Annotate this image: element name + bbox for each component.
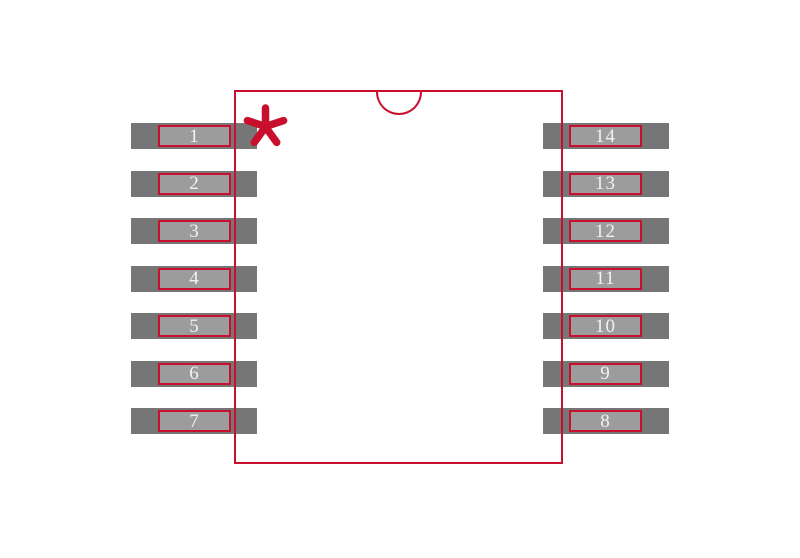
pin-8-number: 8 <box>600 412 611 431</box>
pin-12-outline: 12 <box>569 220 642 242</box>
pad-pin-6: 6 <box>131 361 257 387</box>
pad-pin-4: 4 <box>131 266 257 292</box>
pad-pin-12: 12 <box>543 218 669 244</box>
pad-pin-14: 14 <box>543 123 669 149</box>
pin-14-outline: 14 <box>569 125 642 147</box>
footprint-diagram: 1 2 3 4 5 6 7 14 13 <box>0 0 800 558</box>
pin-10-number: 10 <box>595 317 616 336</box>
pad-pin-8: 8 <box>543 408 669 434</box>
pin-9-outline: 9 <box>569 363 642 385</box>
pin-7-number: 7 <box>189 412 200 431</box>
pin-3-outline: 3 <box>158 220 231 242</box>
pin-9-number: 9 <box>600 364 611 383</box>
pin-3-number: 3 <box>189 222 200 241</box>
pad-pin-11: 11 <box>543 266 669 292</box>
pad-pin-5: 5 <box>131 313 257 339</box>
pin-2-outline: 2 <box>158 173 231 195</box>
pin-14-number: 14 <box>595 127 616 146</box>
pin1-marker-asterisk-icon <box>243 104 288 150</box>
pin-8-outline: 8 <box>569 410 642 432</box>
pin-4-number: 4 <box>189 269 200 288</box>
pad-pin-3: 3 <box>131 218 257 244</box>
pad-pin-10: 10 <box>543 313 669 339</box>
pad-pin-7: 7 <box>131 408 257 434</box>
pin-6-number: 6 <box>189 364 200 383</box>
pin-12-number: 12 <box>595 222 616 241</box>
pad-pin-13: 13 <box>543 171 669 197</box>
pin1-end-notch <box>376 92 422 115</box>
pin-11-number: 11 <box>595 269 615 288</box>
pin-5-outline: 5 <box>158 315 231 337</box>
pin-5-number: 5 <box>189 317 200 336</box>
pin-4-outline: 4 <box>158 268 231 290</box>
pin-1-outline: 1 <box>158 125 231 147</box>
pin-13-number: 13 <box>595 174 616 193</box>
pad-pin-2: 2 <box>131 171 257 197</box>
pin-11-outline: 11 <box>569 268 642 290</box>
pin-10-outline: 10 <box>569 315 642 337</box>
pad-pin-1: 1 <box>131 123 257 149</box>
pin-6-outline: 6 <box>158 363 231 385</box>
pin-1-number: 1 <box>189 127 200 146</box>
pin-13-outline: 13 <box>569 173 642 195</box>
pin-7-outline: 7 <box>158 410 231 432</box>
pin-2-number: 2 <box>189 174 200 193</box>
pad-pin-9: 9 <box>543 361 669 387</box>
